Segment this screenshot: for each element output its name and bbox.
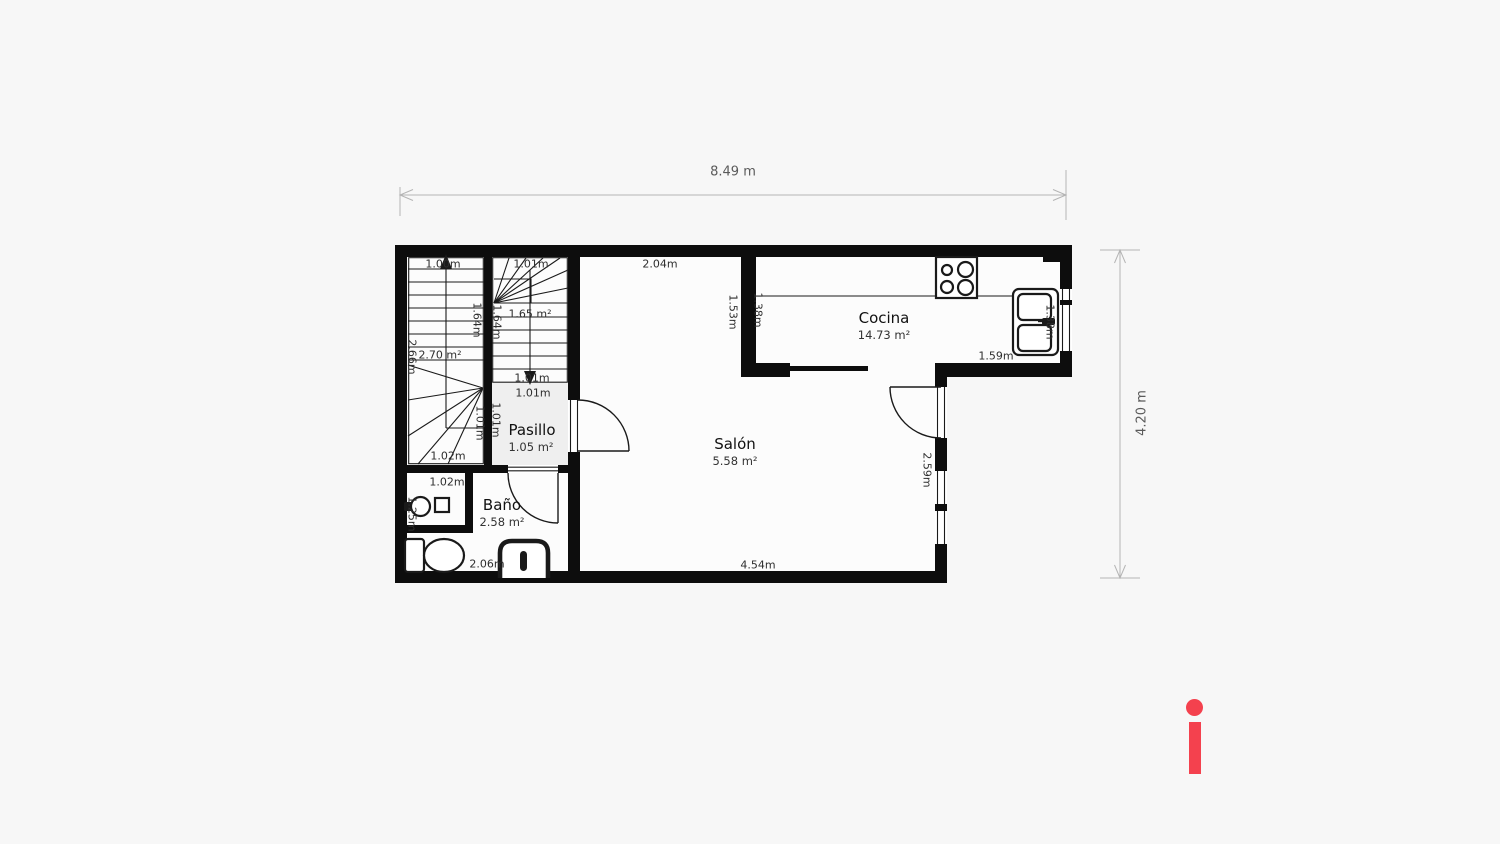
dim-pasillo-width: 1.01m — [515, 387, 550, 400]
dim-bano-vanity-depth: 1.25m — [406, 496, 419, 531]
dim-stair-left-width: 1.00m — [425, 258, 460, 271]
wall-cocina-bottom-left — [741, 363, 790, 377]
dim-cocina-sink: 1.38m — [1044, 304, 1057, 339]
dim-cocina-counter: 1.59m — [978, 350, 1013, 363]
dim-salon-window: 2.59m — [921, 452, 934, 487]
wall-stair-salon — [568, 245, 580, 400]
stove-burners-icon — [936, 257, 977, 298]
dim-pasillo-depth: 1.01m — [490, 402, 503, 437]
shelf-icon — [435, 498, 449, 512]
wall-bano-top-stub — [558, 465, 568, 473]
dim-stair-left-bottom: 1.02m — [430, 450, 465, 463]
dim-label-overall-height: 4.20 m — [1135, 390, 1150, 436]
dim-bano-width: 2.06m — [469, 558, 504, 571]
shower-icon — [500, 541, 548, 578]
salon-window — [935, 467, 947, 548]
room-name-pasillo: Pasillo — [508, 421, 555, 439]
toilet-icon — [405, 539, 464, 572]
wall-cocina-right-lower — [1060, 355, 1072, 377]
dim-bano-vanity-width: 1.02m — [429, 476, 464, 489]
dim-salon-wall: 1.53m — [727, 294, 740, 329]
cocina-window — [1060, 285, 1072, 355]
room-name-salon: Salón — [714, 435, 756, 453]
dim-stair-right-area: 1.65 m² — [508, 308, 551, 321]
room-area-pasillo: 1.05 m² — [508, 440, 553, 454]
dim-salon-bottom: 4.54m — [740, 559, 775, 572]
counter-peninsula — [790, 366, 868, 371]
room-area-salon: 5.58 m² — [712, 454, 757, 468]
wall-bottom — [395, 571, 947, 583]
dim-cocina-wall: 1.38m — [752, 292, 765, 327]
wall-bano-top — [403, 465, 508, 473]
wall-salon-right-b — [935, 438, 947, 467]
room-name-bano: Baño — [483, 496, 521, 514]
shower-handle-icon — [520, 551, 527, 571]
dimension-line-top: 8.49 m — [400, 165, 1066, 221]
dim-stair-left-area: 2.70 m² — [418, 349, 461, 362]
dimension-line-right: 4.20 m — [1100, 250, 1150, 578]
dim-salon-top: 2.04m — [642, 258, 677, 271]
dim-stair-left-run: 1.64m — [471, 302, 484, 337]
room-area-cocina: 14.73 m² — [858, 328, 910, 342]
wall-salon-right-c — [935, 548, 947, 583]
wall-top — [395, 245, 1072, 257]
wall-vanity-vertical — [465, 473, 473, 533]
dim-stair-right-bottom: 1.01m — [514, 372, 549, 385]
floor-plan: 8.49 m 4.20 m 1.00m 1.64m 2.66m 2.70 m² … — [0, 0, 1500, 844]
wall-cocina-bottom — [935, 363, 1072, 377]
dim-stair-right-width: 1.01m — [513, 258, 548, 271]
room-name-cocina: Cocina — [859, 309, 910, 327]
room-area-bano: 2.58 m² — [479, 515, 524, 529]
wall-salon-right-a — [935, 377, 947, 387]
wall-bano-salon — [568, 452, 580, 583]
dim-stair-left-inner: 1.01m — [474, 405, 487, 440]
dim-label-overall-width: 8.49 m — [710, 165, 756, 180]
dim-stair-left-height: 2.66m — [406, 339, 419, 374]
dim-stair-right-run: 1.64m — [491, 304, 504, 339]
logo-i-icon — [1186, 699, 1203, 774]
